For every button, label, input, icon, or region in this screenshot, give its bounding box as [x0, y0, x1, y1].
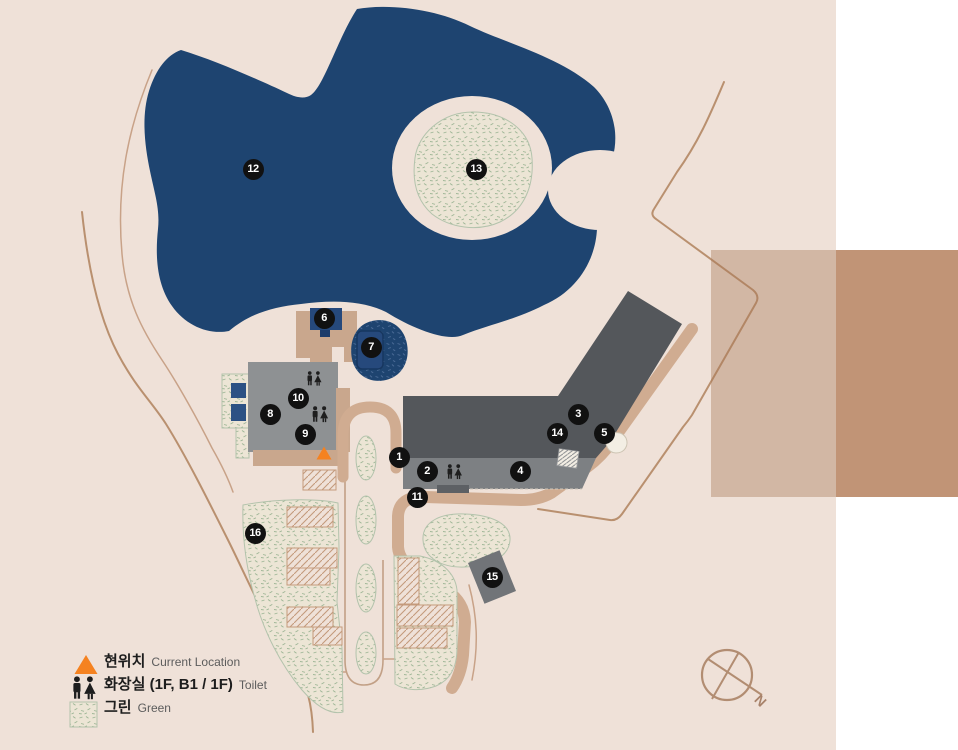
- median-green: [356, 564, 376, 612]
- map-marker-5[interactable]: 5: [594, 423, 615, 444]
- map-marker-13[interactable]: 13: [466, 159, 487, 180]
- map-marker-9[interactable]: 9: [295, 424, 316, 445]
- tee-deck: [397, 605, 453, 626]
- overlay-panel-dark: [836, 250, 958, 497]
- legend-label-en: Current Location: [151, 655, 240, 669]
- map-legend: 현위치 Current Location 화장실 (1F, B1 / 1F) T…: [104, 650, 267, 719]
- tee-deck: [313, 627, 342, 645]
- map-marker-8[interactable]: 8: [260, 404, 281, 425]
- lake-bay: [548, 150, 652, 230]
- map-marker-12[interactable]: 12: [243, 159, 264, 180]
- map-marker-2[interactable]: 2: [417, 461, 438, 482]
- tee-deck: [287, 507, 333, 527]
- facility-map: N 12345678910111213141516 현위치 Current Lo…: [0, 0, 958, 750]
- median-green: [356, 632, 376, 674]
- legend-label-en: Green: [138, 701, 171, 715]
- entrance-canopy: [437, 485, 469, 493]
- site-map-graphic: N: [0, 0, 958, 750]
- west-building-cluster: [222, 362, 350, 466]
- tee-deck: [398, 558, 419, 604]
- map-marker-3[interactable]: 3: [568, 404, 589, 425]
- map-marker-15[interactable]: 15: [482, 567, 503, 588]
- legend-label-ko: 화장실 (1F, B1 / 1F): [104, 673, 233, 694]
- green-swatch-icon: [70, 702, 97, 727]
- legend-row-toilet: 화장실 (1F, B1 / 1F) Toilet: [104, 673, 267, 696]
- median-green: [356, 496, 376, 544]
- legend-label-ko: 현위치: [104, 650, 145, 671]
- map-marker-7[interactable]: 7: [361, 337, 382, 358]
- overlay-panel-light: [711, 250, 836, 497]
- legend-row-current-location: 현위치 Current Location: [104, 650, 267, 673]
- legend-row-green: 그린 Green: [104, 696, 267, 719]
- map-marker-1[interactable]: 1: [389, 447, 410, 468]
- tee-deck: [287, 548, 337, 568]
- stairs: [557, 449, 579, 469]
- tee-deck: [287, 607, 333, 627]
- tee-deck: [397, 628, 447, 648]
- legend-label-en: Toilet: [239, 678, 267, 692]
- tee-deck: [303, 470, 336, 490]
- annex-structure: [231, 383, 246, 398]
- median-green: [356, 436, 376, 480]
- map-marker-16[interactable]: 16: [245, 523, 266, 544]
- map-marker-14[interactable]: 14: [547, 423, 568, 444]
- map-marker-6[interactable]: 6: [314, 308, 335, 329]
- tee-deck: [287, 568, 330, 585]
- map-marker-11[interactable]: 11: [407, 487, 428, 508]
- annex-structure: [231, 404, 246, 421]
- legend-label-ko: 그린: [104, 696, 132, 717]
- map-marker-10[interactable]: 10: [288, 388, 309, 409]
- map-marker-4[interactable]: 4: [510, 461, 531, 482]
